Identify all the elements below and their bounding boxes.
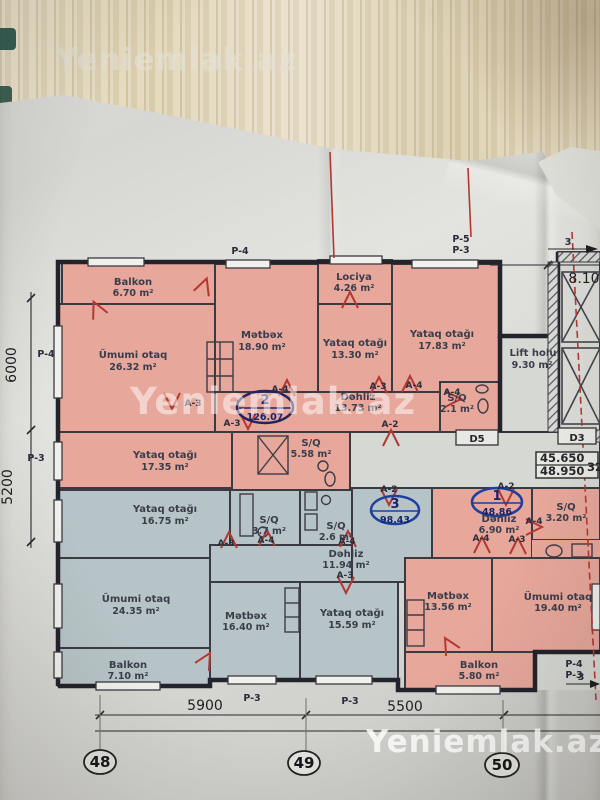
svg-text:A-3: A-3 [337, 571, 354, 581]
svg-text:A-3: A-3 [224, 419, 241, 429]
svg-text:A-3: A-3 [370, 382, 387, 392]
svg-text:P-3: P-3 [243, 693, 260, 704]
svg-text:13.73 m²: 13.73 m² [334, 403, 381, 414]
svg-text:A-2: A-2 [382, 420, 399, 430]
elevation-box: 45.650 48.950 32 [536, 451, 600, 478]
axis-label-50: 50 [492, 756, 513, 774]
arrow-label-top: 3 [565, 237, 572, 248]
svg-text:S/Q: S/Q [326, 521, 345, 532]
svg-text:A-4: A-4 [272, 385, 289, 395]
svg-text:A-4: A-4 [444, 388, 461, 398]
photo-background-wood: 48 49 50 45.650 48.950 32 D5 D3 2 126.07 [0, 0, 600, 800]
arrow-label-bottom: 3 [578, 672, 585, 683]
svg-text:4.26 m²: 4.26 m² [334, 283, 375, 294]
svg-text:6.70 m²: 6.70 m² [113, 288, 154, 299]
svg-text:Ümumi otaq: Ümumi otaq [524, 589, 593, 603]
svg-text:8.10: 8.10 [568, 271, 599, 287]
svg-text:13.30 m²: 13.30 m² [331, 350, 378, 361]
svg-text:P-5: P-5 [452, 234, 469, 245]
svg-text:18.90 m²: 18.90 m² [238, 342, 285, 353]
svg-text:17.83 m²: 17.83 m² [418, 341, 465, 352]
svg-text:16.75 m²: 16.75 m² [141, 516, 188, 527]
svg-text:24.35 m²: 24.35 m² [112, 606, 159, 617]
svg-text:Balkon: Balkon [460, 660, 498, 671]
svg-text:Balkon: Balkon [114, 277, 152, 288]
svg-text:5900: 5900 [187, 698, 223, 714]
svg-text:Balkon: Balkon [109, 660, 147, 671]
svg-text:A-4: A-4 [406, 381, 423, 391]
svg-text:A-4: A-4 [258, 536, 275, 546]
elevation-value-1: 45.650 [540, 451, 584, 465]
svg-text:A-4: A-4 [339, 537, 356, 547]
svg-text:5.80 m²: 5.80 m² [459, 671, 500, 682]
badge3-number: 3 [390, 497, 399, 512]
svg-text:Yataq otağı: Yataq otağı [132, 503, 197, 515]
svg-text:A-4: A-4 [526, 517, 543, 527]
svg-text:3.20 m²: 3.20 m² [546, 513, 587, 524]
elevation-value-2: 48.950 [540, 464, 584, 478]
svg-text:6000: 6000 [4, 347, 20, 383]
axis-label-49: 49 [294, 754, 315, 772]
badge3-area: 98.43 [380, 515, 410, 526]
svg-text:15.59 m²: 15.59 m² [328, 620, 375, 631]
svg-text:P-3: P-3 [341, 696, 358, 707]
room-apt2-sq2 [232, 432, 350, 490]
svg-text:Ümumi otaq: Ümumi otaq [102, 591, 171, 605]
svg-text:P-3: P-3 [27, 453, 44, 464]
svg-text:5.58 m²: 5.58 m² [291, 449, 332, 460]
svg-text:7.10 m²: 7.10 m² [108, 671, 149, 682]
room-apt2-metbex [215, 264, 318, 392]
floor-plan-drawing: 48 49 50 45.650 48.950 32 D5 D3 2 126.07 [0, 0, 600, 800]
svg-text:S/Q: S/Q [301, 438, 320, 449]
svg-text:P-4: P-4 [37, 349, 55, 360]
svg-text:A-4: A-4 [473, 534, 490, 544]
svg-text:Dəhliz: Dəhliz [341, 392, 376, 403]
svg-text:Yataq otağı: Yataq otağı [322, 337, 387, 349]
svg-text:Mətbəx: Mətbəx [427, 591, 469, 602]
svg-text:Yataq otağı: Yataq otağı [132, 449, 197, 461]
svg-text:Lift holu: Lift holu [510, 348, 557, 359]
svg-text:9.30 m²: 9.30 m² [512, 360, 553, 371]
axis-label-48: 48 [90, 753, 111, 771]
svg-text:Mətbəx: Mətbəx [241, 330, 283, 341]
door-type-d3: D3 [569, 433, 584, 444]
svg-text:Dəhliz: Dəhliz [482, 514, 517, 525]
room-apt2-yataq2 [392, 264, 500, 392]
svg-text:P-4: P-4 [231, 246, 249, 257]
room-apt1-strip [532, 540, 600, 558]
svg-text:5500: 5500 [387, 699, 423, 715]
svg-text:17.35 m²: 17.35 m² [141, 462, 188, 473]
svg-text:S/Q: S/Q [259, 515, 278, 526]
svg-text:26.32 m²: 26.32 m² [109, 362, 156, 373]
svg-text:Yataq otağı: Yataq otağı [409, 328, 474, 340]
elevation-partial: 32 [587, 460, 600, 474]
svg-text:P-4: P-4 [565, 659, 583, 670]
svg-text:P-3: P-3 [452, 245, 469, 256]
svg-text:Yataq otağı: Yataq otağı [319, 607, 384, 619]
svg-text:13.56 m²: 13.56 m² [424, 602, 471, 613]
svg-text:19.40 m²: 19.40 m² [534, 603, 581, 614]
svg-text:A-3: A-3 [185, 399, 202, 409]
badge2-area: 126.07 [247, 412, 284, 423]
svg-text:Mətbəx: Mətbəx [225, 611, 267, 622]
door-type-d5: D5 [469, 434, 484, 445]
svg-text:A-2: A-2 [381, 485, 398, 495]
svg-text:A-2: A-2 [498, 482, 515, 492]
svg-text:16.40 m²: 16.40 m² [222, 622, 269, 633]
svg-text:Dəhliz: Dəhliz [329, 549, 364, 560]
svg-text:2.1 m²: 2.1 m² [440, 404, 474, 415]
room-apt3-yataq2 [300, 582, 398, 680]
svg-text:11.94 m²: 11.94 m² [322, 560, 369, 571]
svg-text:Ümumi otaq: Ümumi otaq [99, 347, 168, 361]
svg-text:Lociya: Lociya [336, 272, 372, 283]
svg-text:A-3: A-3 [509, 535, 526, 545]
svg-text:A-3: A-3 [218, 539, 235, 549]
svg-text:S/Q: S/Q [556, 502, 575, 513]
svg-text:5200: 5200 [0, 469, 16, 505]
badge2-number: 2 [260, 393, 269, 408]
